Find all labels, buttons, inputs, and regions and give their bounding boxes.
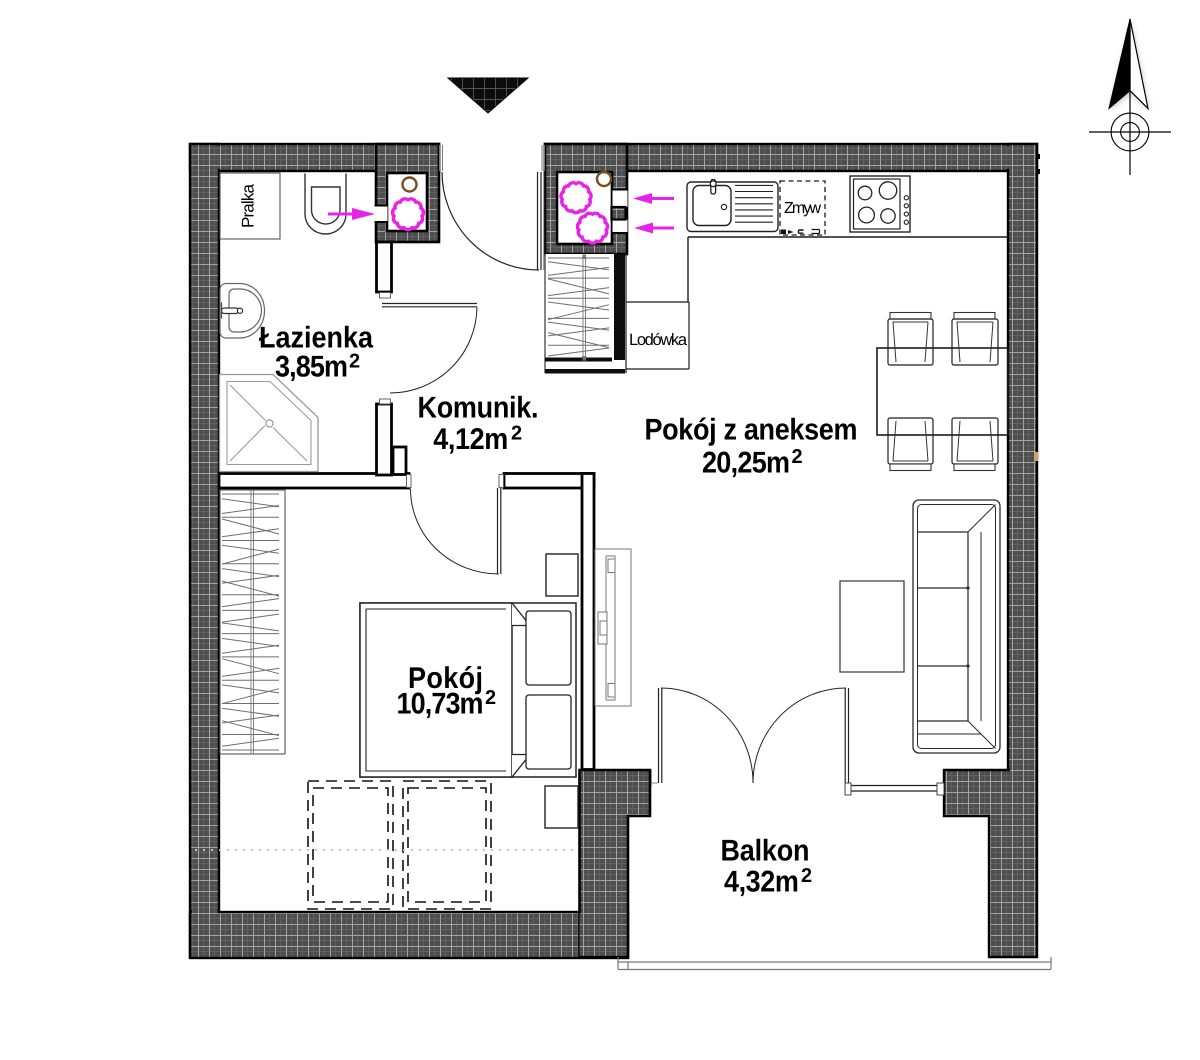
svg-text:Balkon: Balkon (720, 834, 809, 867)
svg-text:10,73m: 10,73m (397, 688, 484, 721)
svg-text:2: 2 (801, 865, 812, 887)
svg-text:2: 2 (349, 351, 360, 373)
svg-text:Pokój z aneksem: Pokój z aneksem (644, 413, 857, 446)
svg-text:4,12m: 4,12m (433, 423, 508, 456)
svg-text:4,32m: 4,32m (724, 866, 799, 899)
svg-text:Komunik.: Komunik. (418, 391, 539, 424)
svg-text:2: 2 (511, 423, 522, 445)
svg-text:20,25m: 20,25m (702, 447, 790, 480)
svg-text:2: 2 (792, 446, 803, 468)
svg-text:Pralka: Pralka (239, 183, 258, 228)
svg-text:2: 2 (485, 687, 496, 709)
svg-text:Lodówka: Lodówka (629, 331, 688, 349)
svg-text:Zmyw: Zmyw (784, 200, 821, 217)
svg-text:3,85m: 3,85m (275, 351, 348, 384)
